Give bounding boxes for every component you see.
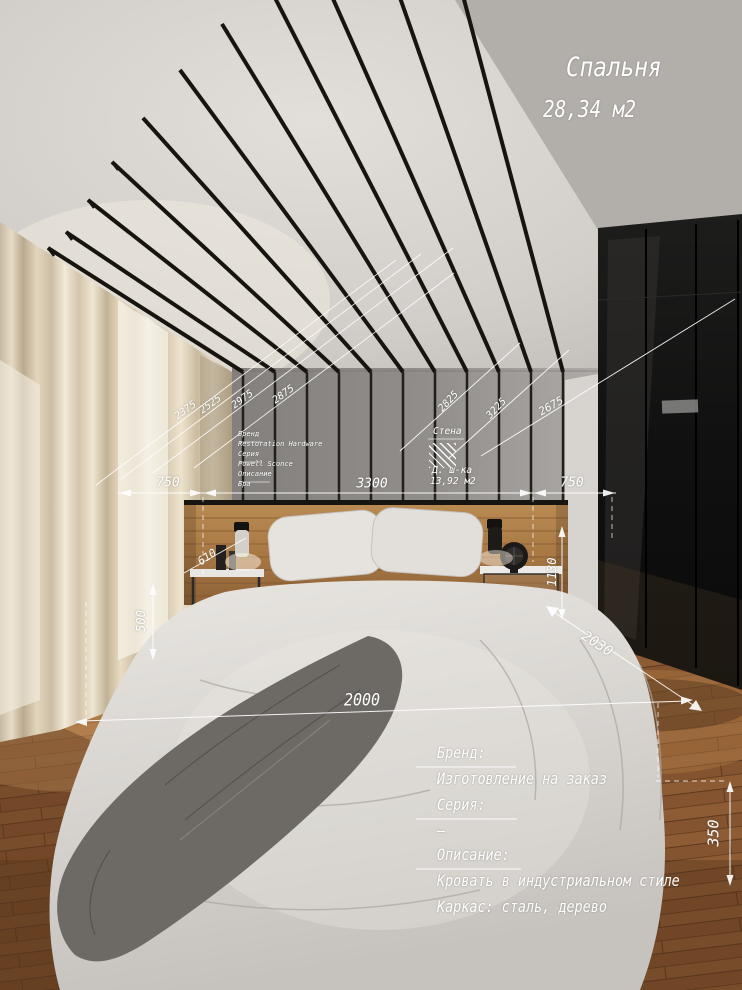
room-area: 28,34 м2 — [543, 99, 654, 122]
room-title: Спальня — [566, 54, 680, 81]
room-title-text: Спальня — [566, 54, 662, 81]
wall-label: Стена — [433, 427, 462, 437]
pillows — [266, 506, 484, 582]
room-area-text: 28,34 м2 — [543, 99, 636, 122]
sconce-spec-block: Бренд Restoration Hardware Серия Powell … — [238, 429, 348, 489]
bed-description-line2: Каркас: сталь, дерево — [437, 899, 639, 915]
scene-render — [0, 0, 742, 990]
wardrobe — [598, 214, 742, 690]
bed-description-line1: Кровать в индустриальном стиле — [437, 873, 726, 889]
bedroom-render: Спальня 28,34 м2 Бренд Restoration Hardw… — [0, 0, 742, 990]
bed-brand-label: Бренд: — [437, 745, 495, 761]
sconce-series: Powell Sconce — [238, 459, 348, 469]
dim-wall-left: 750 — [156, 477, 179, 490]
bed-series: – — [437, 823, 447, 839]
sconce-brand-label: Бренд — [238, 429, 348, 439]
bed-series-label: Серия: — [437, 797, 495, 813]
wall-area: 13,92 м2 — [430, 477, 476, 487]
sconce-brand: Restoration Hardware — [238, 439, 348, 449]
dim-bed-width: 2000 — [344, 693, 380, 710]
dim-nightstand-wall: 1130 — [546, 558, 558, 587]
sconce-series-label: Серия — [238, 449, 348, 459]
dim-wall-right: 750 — [560, 477, 583, 490]
dim-bed-side: 500 — [135, 610, 147, 632]
wall-material: Д. ш-ка — [432, 466, 472, 476]
bed-description-label: Описание: — [437, 847, 524, 863]
sconce-description-label: Описание — [238, 469, 348, 479]
sconce-description: Бра — [238, 479, 348, 489]
dim-wall-center: 3300 — [356, 478, 387, 491]
bed-brand: Изготовление на заказ — [437, 771, 639, 787]
dim-wardrobe-floor: 350 — [707, 819, 722, 846]
